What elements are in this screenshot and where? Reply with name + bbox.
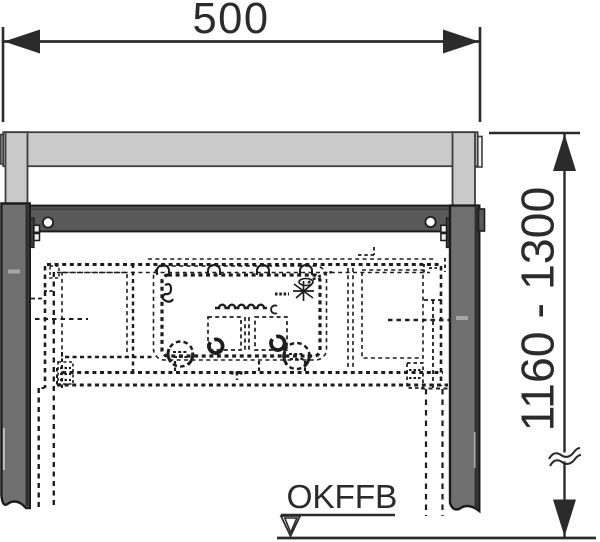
svg-text:1160 - 1300: 1160 - 1300	[512, 187, 564, 432]
svg-text:500: 500	[192, 0, 269, 43]
svg-text:OKFFB: OKFFB	[287, 479, 398, 516]
